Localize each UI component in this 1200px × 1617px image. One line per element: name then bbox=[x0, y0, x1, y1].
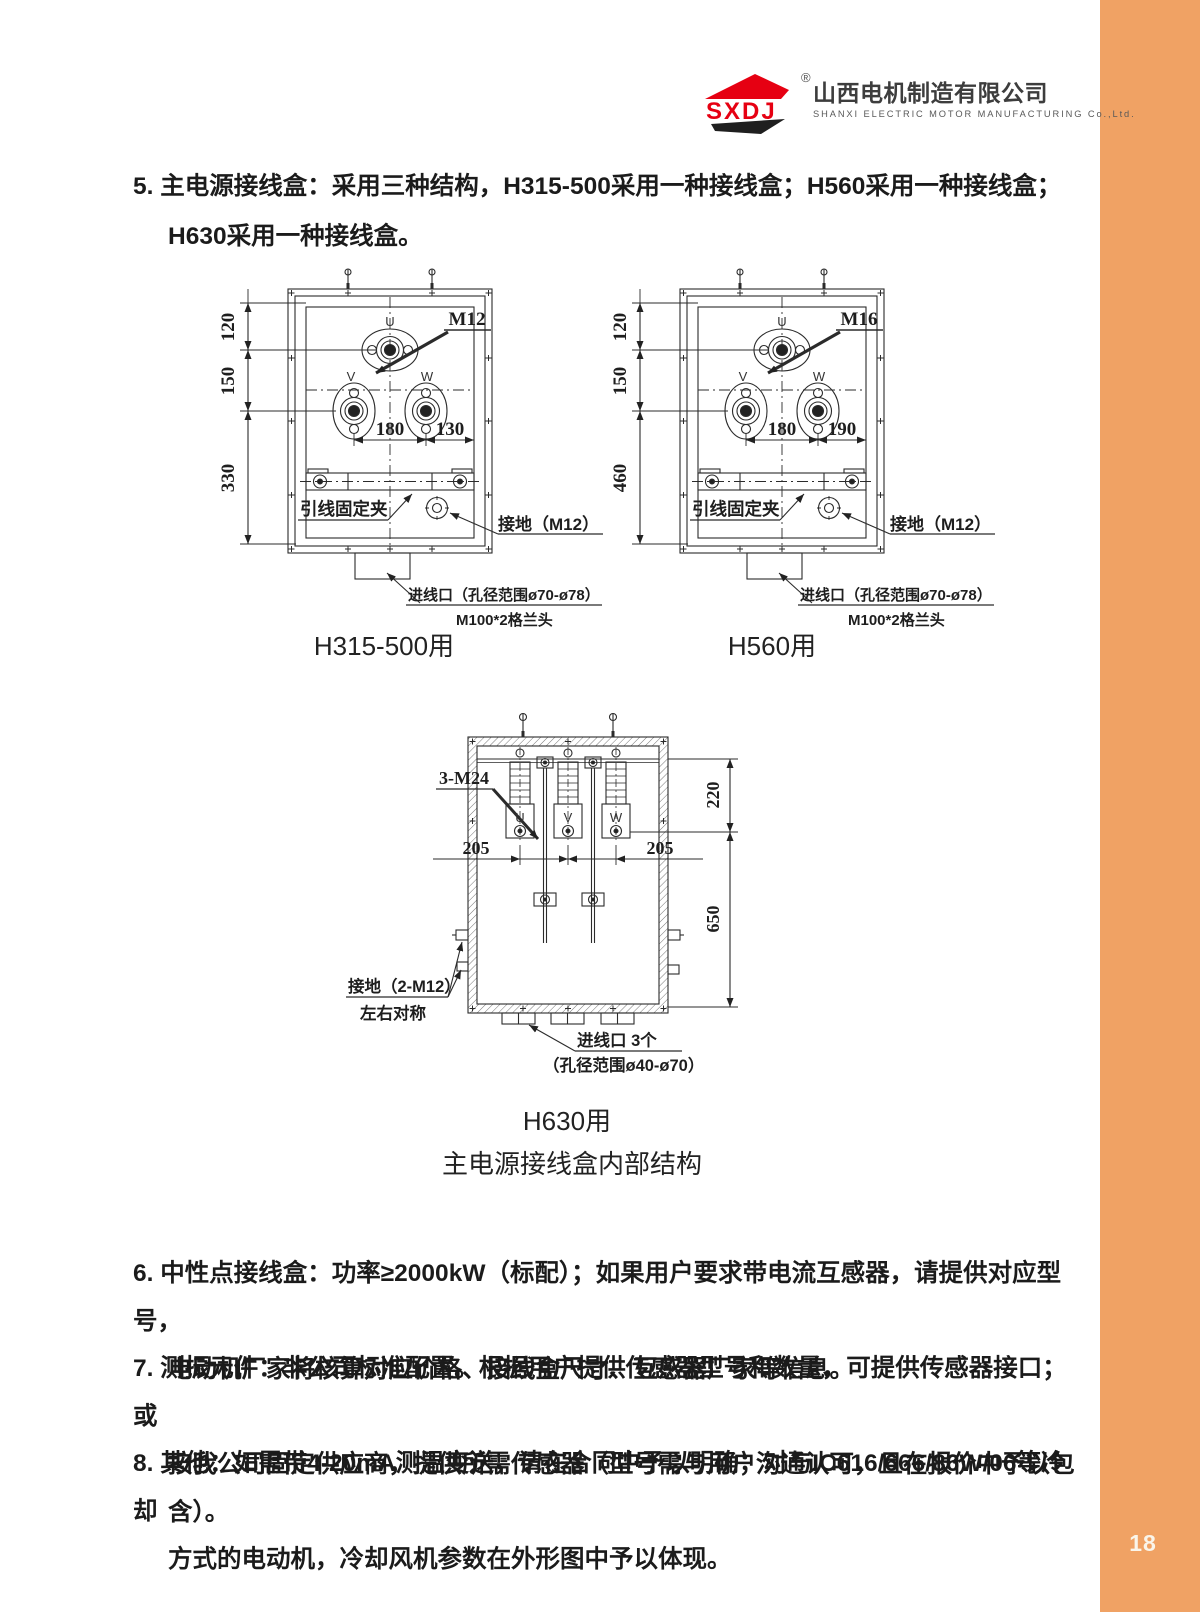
bolt-size-label: M12 bbox=[449, 309, 486, 330]
bolt-count-label: 3-M24 bbox=[439, 768, 489, 788]
cable-entry-label-line1: 进线口 3个 bbox=[577, 1030, 657, 1050]
ground-label: 接地（M12） bbox=[890, 514, 991, 534]
item-8-line-2: 方式的电动机，冷却风机参数在外形图中予以体现。 bbox=[133, 1536, 1088, 1584]
company-logo: SXDJ ® 山西电机制造有限公司 SHANXI ELECTRIC MOTOR … bbox=[697, 70, 1136, 134]
terminal-w-label: W bbox=[610, 810, 623, 825]
ground-label-line1: 接地（2-M12） bbox=[348, 976, 461, 996]
junction-box-diagram-h630: U V W 3-M24 205 205 220 650 接地（2-M12） 左右… bbox=[330, 693, 810, 1095]
terminal-v-label: V bbox=[564, 810, 573, 825]
diagram-subtitle: 主电源接线盒内部结构 bbox=[422, 1144, 722, 1181]
dim-205-right: 205 bbox=[647, 838, 674, 858]
dim-220: 220 bbox=[703, 782, 723, 809]
lead-clamp-label: 引线固定夹 bbox=[692, 499, 780, 519]
bolt-size-label: M16 bbox=[841, 309, 878, 330]
company-name-en: SHANXI ELECTRIC MOTOR MANUFACTURING Co.,… bbox=[813, 109, 1136, 119]
terminal-u-label: U bbox=[385, 314, 394, 329]
terminal-w-label: W bbox=[813, 369, 826, 384]
terminal-v-label: V bbox=[739, 369, 748, 384]
cable-entry-label-line2: （孔径范围ø40-ø70） bbox=[543, 1055, 704, 1075]
dim-330: 330 bbox=[218, 464, 239, 493]
item-7-line-1: 7. 测振元件：非公司标准配置。根据用户提供传感器型号和数量，可提供传感器接口；… bbox=[133, 1345, 1088, 1441]
caption-h560: H560用 bbox=[657, 626, 887, 663]
company-name-cn: 山西电机制造有限公司 bbox=[813, 80, 1136, 106]
dim-460: 460 bbox=[610, 464, 631, 493]
item-6-line-1: 6. 中性点接线盒：功率≥2000kW（标配）；如果用户要求带电流互感器，请提供… bbox=[133, 1250, 1088, 1346]
dim-150: 150 bbox=[610, 367, 631, 396]
junction-box-diagram-h315-500: U V W M12 120 150 330 180 130 引线固定夹 接地（M… bbox=[210, 253, 605, 635]
terminal-v bbox=[725, 383, 767, 439]
terminal-u-label: U bbox=[515, 810, 524, 825]
dim-120: 120 bbox=[218, 313, 239, 342]
dim-650: 650 bbox=[703, 906, 723, 933]
ground-bolt bbox=[425, 496, 449, 520]
terminal-v bbox=[333, 383, 375, 439]
dim-180: 180 bbox=[768, 419, 797, 440]
logo-icon: SXDJ ® bbox=[697, 70, 797, 134]
ground-label-line2: 左右对称 bbox=[360, 1003, 427, 1023]
ground-bolt bbox=[817, 496, 841, 520]
dim-120: 120 bbox=[610, 313, 631, 342]
dim-130: 130 bbox=[436, 419, 465, 440]
junction-box-diagram-h560: U V W M16 120 150 460 180 190 引线固定夹 接地（M… bbox=[602, 253, 997, 635]
sxdj-logo-graphic: SXDJ bbox=[697, 70, 797, 134]
caption-h630: H630用 bbox=[467, 1101, 667, 1138]
page-number: 18 bbox=[1121, 1530, 1165, 1557]
right-accent-strip bbox=[1100, 0, 1200, 1612]
ground-label: 接地（M12） bbox=[498, 514, 599, 534]
item-8-line-1: 8. 其他：如需带4-20mA测温变送，请在合同中予以明确；对与IC616/66… bbox=[133, 1440, 1088, 1536]
terminal-u-label: U bbox=[777, 314, 786, 329]
dim-150: 150 bbox=[218, 367, 239, 396]
cable-entry-label: 进线口（孔径范围ø70-ø78） bbox=[800, 586, 992, 604]
lead-clamp-label: 引线固定夹 bbox=[300, 499, 388, 519]
terminal-v-label: V bbox=[347, 369, 356, 384]
item-8-paragraph: 8. 其他：如需带4-20mA测温变送，请在合同中予以明确；对与IC616/66… bbox=[133, 1440, 1088, 1584]
item-5-line-1: 5. 主电源接线盒：采用三种结构，H315-500采用一种接线盒；H560采用一… bbox=[133, 162, 1088, 212]
dim-190: 190 bbox=[828, 419, 857, 440]
dim-180: 180 bbox=[376, 419, 405, 440]
terminal-w-label: W bbox=[421, 369, 434, 384]
registered-mark: ® bbox=[801, 70, 811, 85]
cable-entry-label: 进线口（孔径范围ø70-ø78） bbox=[408, 586, 600, 604]
logo-roof-shape bbox=[705, 74, 789, 99]
caption-h315-500: H315-500用 bbox=[269, 626, 499, 663]
dim-205-left: 205 bbox=[463, 838, 490, 858]
item-5-paragraph: 5. 主电源接线盒：采用三种结构，H315-500采用一种接线盒；H560采用一… bbox=[133, 162, 1088, 262]
